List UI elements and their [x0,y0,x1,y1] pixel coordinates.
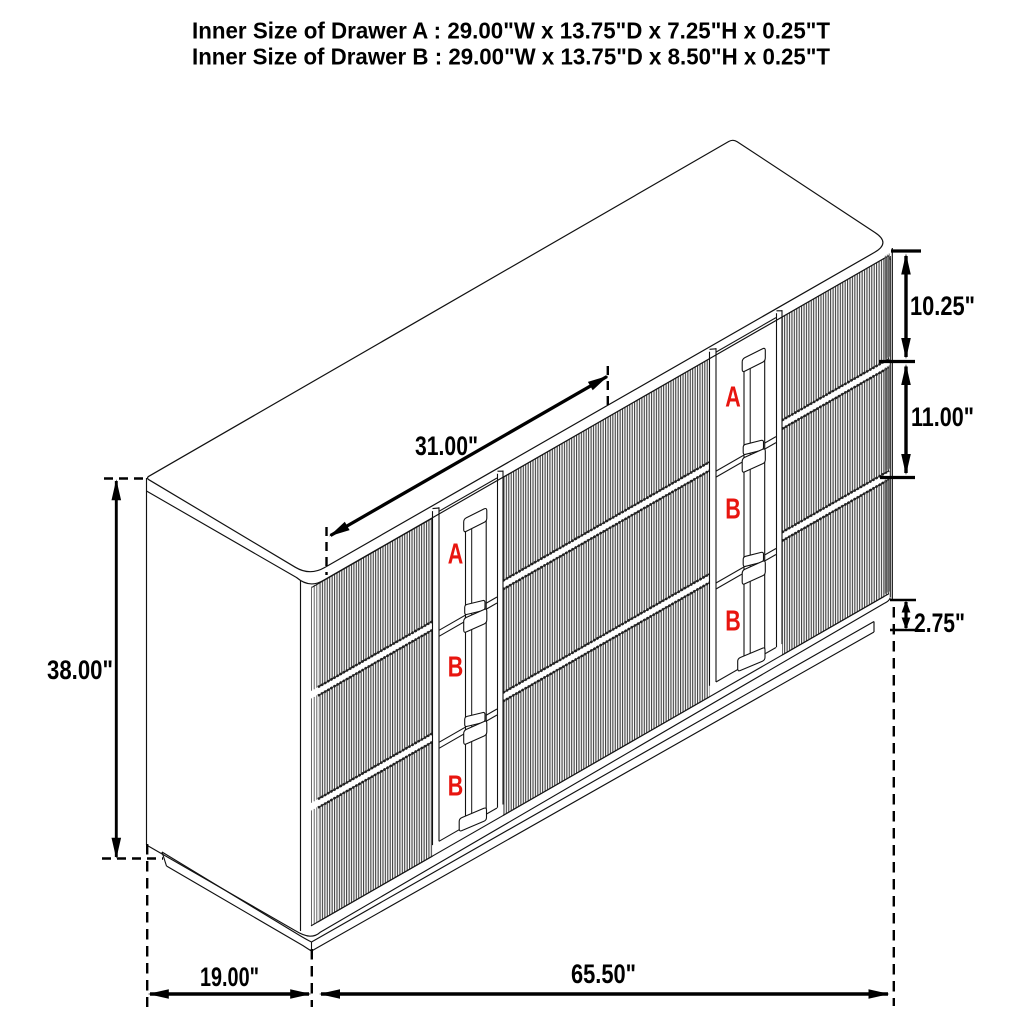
svg-text:31.00": 31.00" [415,431,478,461]
svg-text:11.00": 11.00" [911,402,974,432]
svg-text:19.00": 19.00" [200,962,259,992]
svg-text:Inner Size of Drawer B : 29.00: Inner Size of Drawer B : 29.00"W x 13.75… [192,44,830,70]
svg-text:10.25": 10.25" [910,291,975,321]
svg-text:65.50": 65.50" [571,959,636,989]
svg-text:38.00": 38.00" [47,655,113,685]
svg-text:A: A [725,382,741,414]
svg-text:B: B [448,771,464,803]
svg-text:Inner Size of Drawer A : 29.00: Inner Size of Drawer A : 29.00"W x 13.75… [192,18,830,44]
svg-text:A: A [448,539,464,571]
svg-text:2.75": 2.75" [914,608,965,638]
svg-text:B: B [448,652,464,684]
svg-text:B: B [725,494,741,526]
svg-text:B: B [725,606,741,638]
